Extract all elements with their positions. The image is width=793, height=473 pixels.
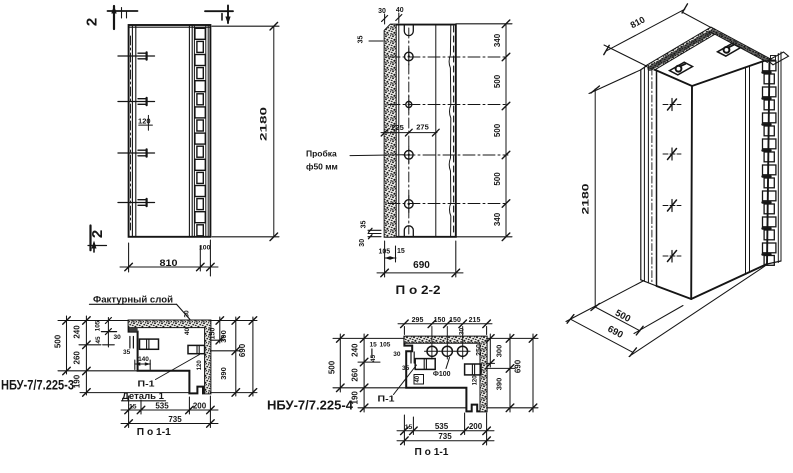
svg-text:300: 300	[495, 345, 504, 358]
svg-text:40: 40	[396, 7, 404, 14]
svg-text:30: 30	[393, 351, 401, 358]
svg-text:260: 260	[73, 351, 82, 365]
svg-text:105: 105	[380, 342, 391, 349]
svg-text:535: 535	[155, 401, 169, 410]
svg-text:Пробка: Пробка	[306, 149, 337, 159]
svg-text:810: 810	[160, 258, 178, 268]
svg-text:150: 150	[210, 328, 217, 340]
svg-text:500: 500	[328, 360, 337, 374]
svg-text:535: 535	[435, 422, 449, 431]
svg-text:100: 100	[199, 245, 211, 252]
svg-text:340: 340	[493, 33, 502, 47]
svg-text:40: 40	[415, 375, 421, 382]
svg-text:П о 1-1: П о 1-1	[415, 446, 449, 458]
svg-text:НБУ-7/7.225-4: НБУ-7/7.225-4	[267, 399, 353, 413]
svg-text:260: 260	[351, 368, 360, 382]
svg-text:15: 15	[370, 342, 378, 349]
svg-text:15: 15	[129, 403, 137, 410]
svg-text:390: 390	[219, 367, 228, 380]
svg-text:35: 35	[402, 365, 410, 372]
svg-text:500: 500	[54, 334, 63, 348]
svg-text:45: 45	[370, 355, 377, 363]
svg-text:690: 690	[238, 343, 247, 357]
svg-text:150: 150	[449, 317, 461, 324]
svg-text:240: 240	[73, 325, 82, 339]
svg-text:НБУ-7/7.225-3: НБУ-7/7.225-3	[1, 378, 74, 393]
svg-text:15: 15	[405, 424, 413, 431]
svg-text:240: 240	[351, 343, 360, 357]
svg-text:225: 225	[391, 123, 404, 132]
svg-text:390: 390	[495, 378, 504, 391]
svg-text:690: 690	[606, 324, 625, 341]
svg-text:690: 690	[413, 260, 430, 271]
svg-text:275: 275	[416, 123, 429, 132]
svg-text:215: 215	[469, 317, 481, 324]
svg-text:295: 295	[412, 317, 424, 324]
svg-text:150: 150	[434, 317, 446, 324]
svg-text:500: 500	[613, 308, 632, 325]
svg-text:105: 105	[94, 320, 101, 331]
svg-text:810: 810	[629, 14, 647, 30]
svg-text:500: 500	[493, 172, 502, 186]
svg-text:120: 120	[197, 360, 203, 371]
svg-text:2: 2	[89, 230, 106, 238]
svg-text:200: 200	[193, 401, 207, 410]
svg-text:690: 690	[514, 359, 523, 373]
svg-text:П-1: П-1	[138, 379, 155, 389]
svg-text:2180: 2180	[259, 107, 270, 141]
svg-text:15: 15	[397, 248, 405, 255]
svg-text:40: 40	[184, 328, 191, 336]
svg-text:35: 35	[361, 221, 368, 229]
svg-text:300: 300	[219, 330, 228, 343]
svg-text:35: 35	[123, 349, 131, 356]
svg-text:30: 30	[114, 334, 122, 341]
svg-text:Ф100: Ф100	[433, 371, 451, 378]
svg-text:200: 200	[469, 422, 483, 431]
svg-text:340: 340	[493, 212, 502, 226]
svg-text:2180: 2180	[581, 184, 591, 215]
svg-text:30: 30	[359, 239, 366, 247]
svg-text:120: 120	[472, 375, 478, 386]
svg-text:45: 45	[95, 336, 102, 344]
svg-text:35: 35	[358, 36, 365, 44]
svg-text:735: 735	[438, 432, 452, 441]
svg-text:П о 1-1: П о 1-1	[137, 426, 171, 438]
svg-text:30: 30	[459, 328, 466, 336]
svg-text:140: 140	[138, 356, 149, 363]
svg-text:ф50 мм: ф50 мм	[306, 162, 338, 172]
svg-text:250: 250	[476, 344, 483, 356]
svg-text:735: 735	[168, 415, 182, 424]
svg-text:2: 2	[84, 18, 101, 26]
svg-text:П-1: П-1	[378, 394, 395, 404]
svg-text:500: 500	[493, 123, 502, 137]
svg-text:500: 500	[493, 74, 502, 88]
svg-text:П о 2-2: П о 2-2	[396, 283, 441, 297]
